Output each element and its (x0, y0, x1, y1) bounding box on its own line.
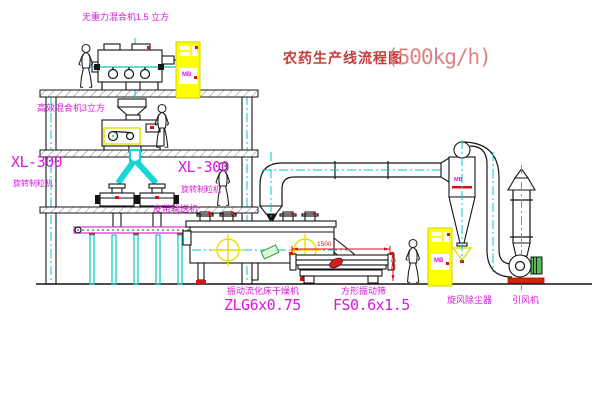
dimension-height: 545 (389, 259, 396, 270)
label-granulator-center-name: 旋转制粒机 (181, 186, 221, 194)
label-screen-name: 方形振动筛 (341, 287, 386, 296)
induced-draft-fan (508, 255, 544, 283)
label-dryer-model: ZLG6x0.75 (224, 298, 301, 313)
cabinet-right-text: MB (434, 258, 443, 264)
label-high-efficiency-mixer: 高效混合机3立方 (37, 104, 105, 113)
label-fan: 引风机 (512, 296, 539, 305)
diagram-title: 农药生产线流程图 (283, 51, 403, 65)
granulator-left (95, 184, 139, 227)
diagram-canvas: 无重力混合机1.5 立方 高效混合机3立方 XL-300 旋转制粒机 XL-30… (0, 0, 600, 403)
control-cabinet-right (428, 228, 452, 286)
control-cabinet-top (176, 42, 200, 98)
label-granulator-center-model: XL-300 (178, 160, 229, 175)
label-granulator-left-name: 旋转制粒机 (13, 180, 53, 188)
diagram-title-capacity: (500kg/h) (386, 47, 491, 68)
person-ground (406, 240, 420, 283)
high-efficiency-mixer (102, 115, 164, 152)
label-gravity-free-mixer: 无重力混合机1.5 立方 (82, 13, 169, 22)
cabinet-top-text: MB (182, 72, 191, 78)
cyclone-tag: MB (454, 178, 463, 184)
label-belt-conveyor: 皮带输送机 (153, 205, 198, 214)
label-granulator-left-model: XL-300 (11, 155, 62, 170)
label-dryer-name: 振动流化床干燥机 (227, 287, 299, 296)
label-cyclone: 旋风除尘器 (447, 296, 492, 305)
label-screen-model: FS0.6x1.5 (333, 298, 410, 313)
person-roof (79, 45, 93, 88)
belt-conveyor (74, 227, 198, 284)
dimension-width: 1500 (317, 242, 331, 249)
